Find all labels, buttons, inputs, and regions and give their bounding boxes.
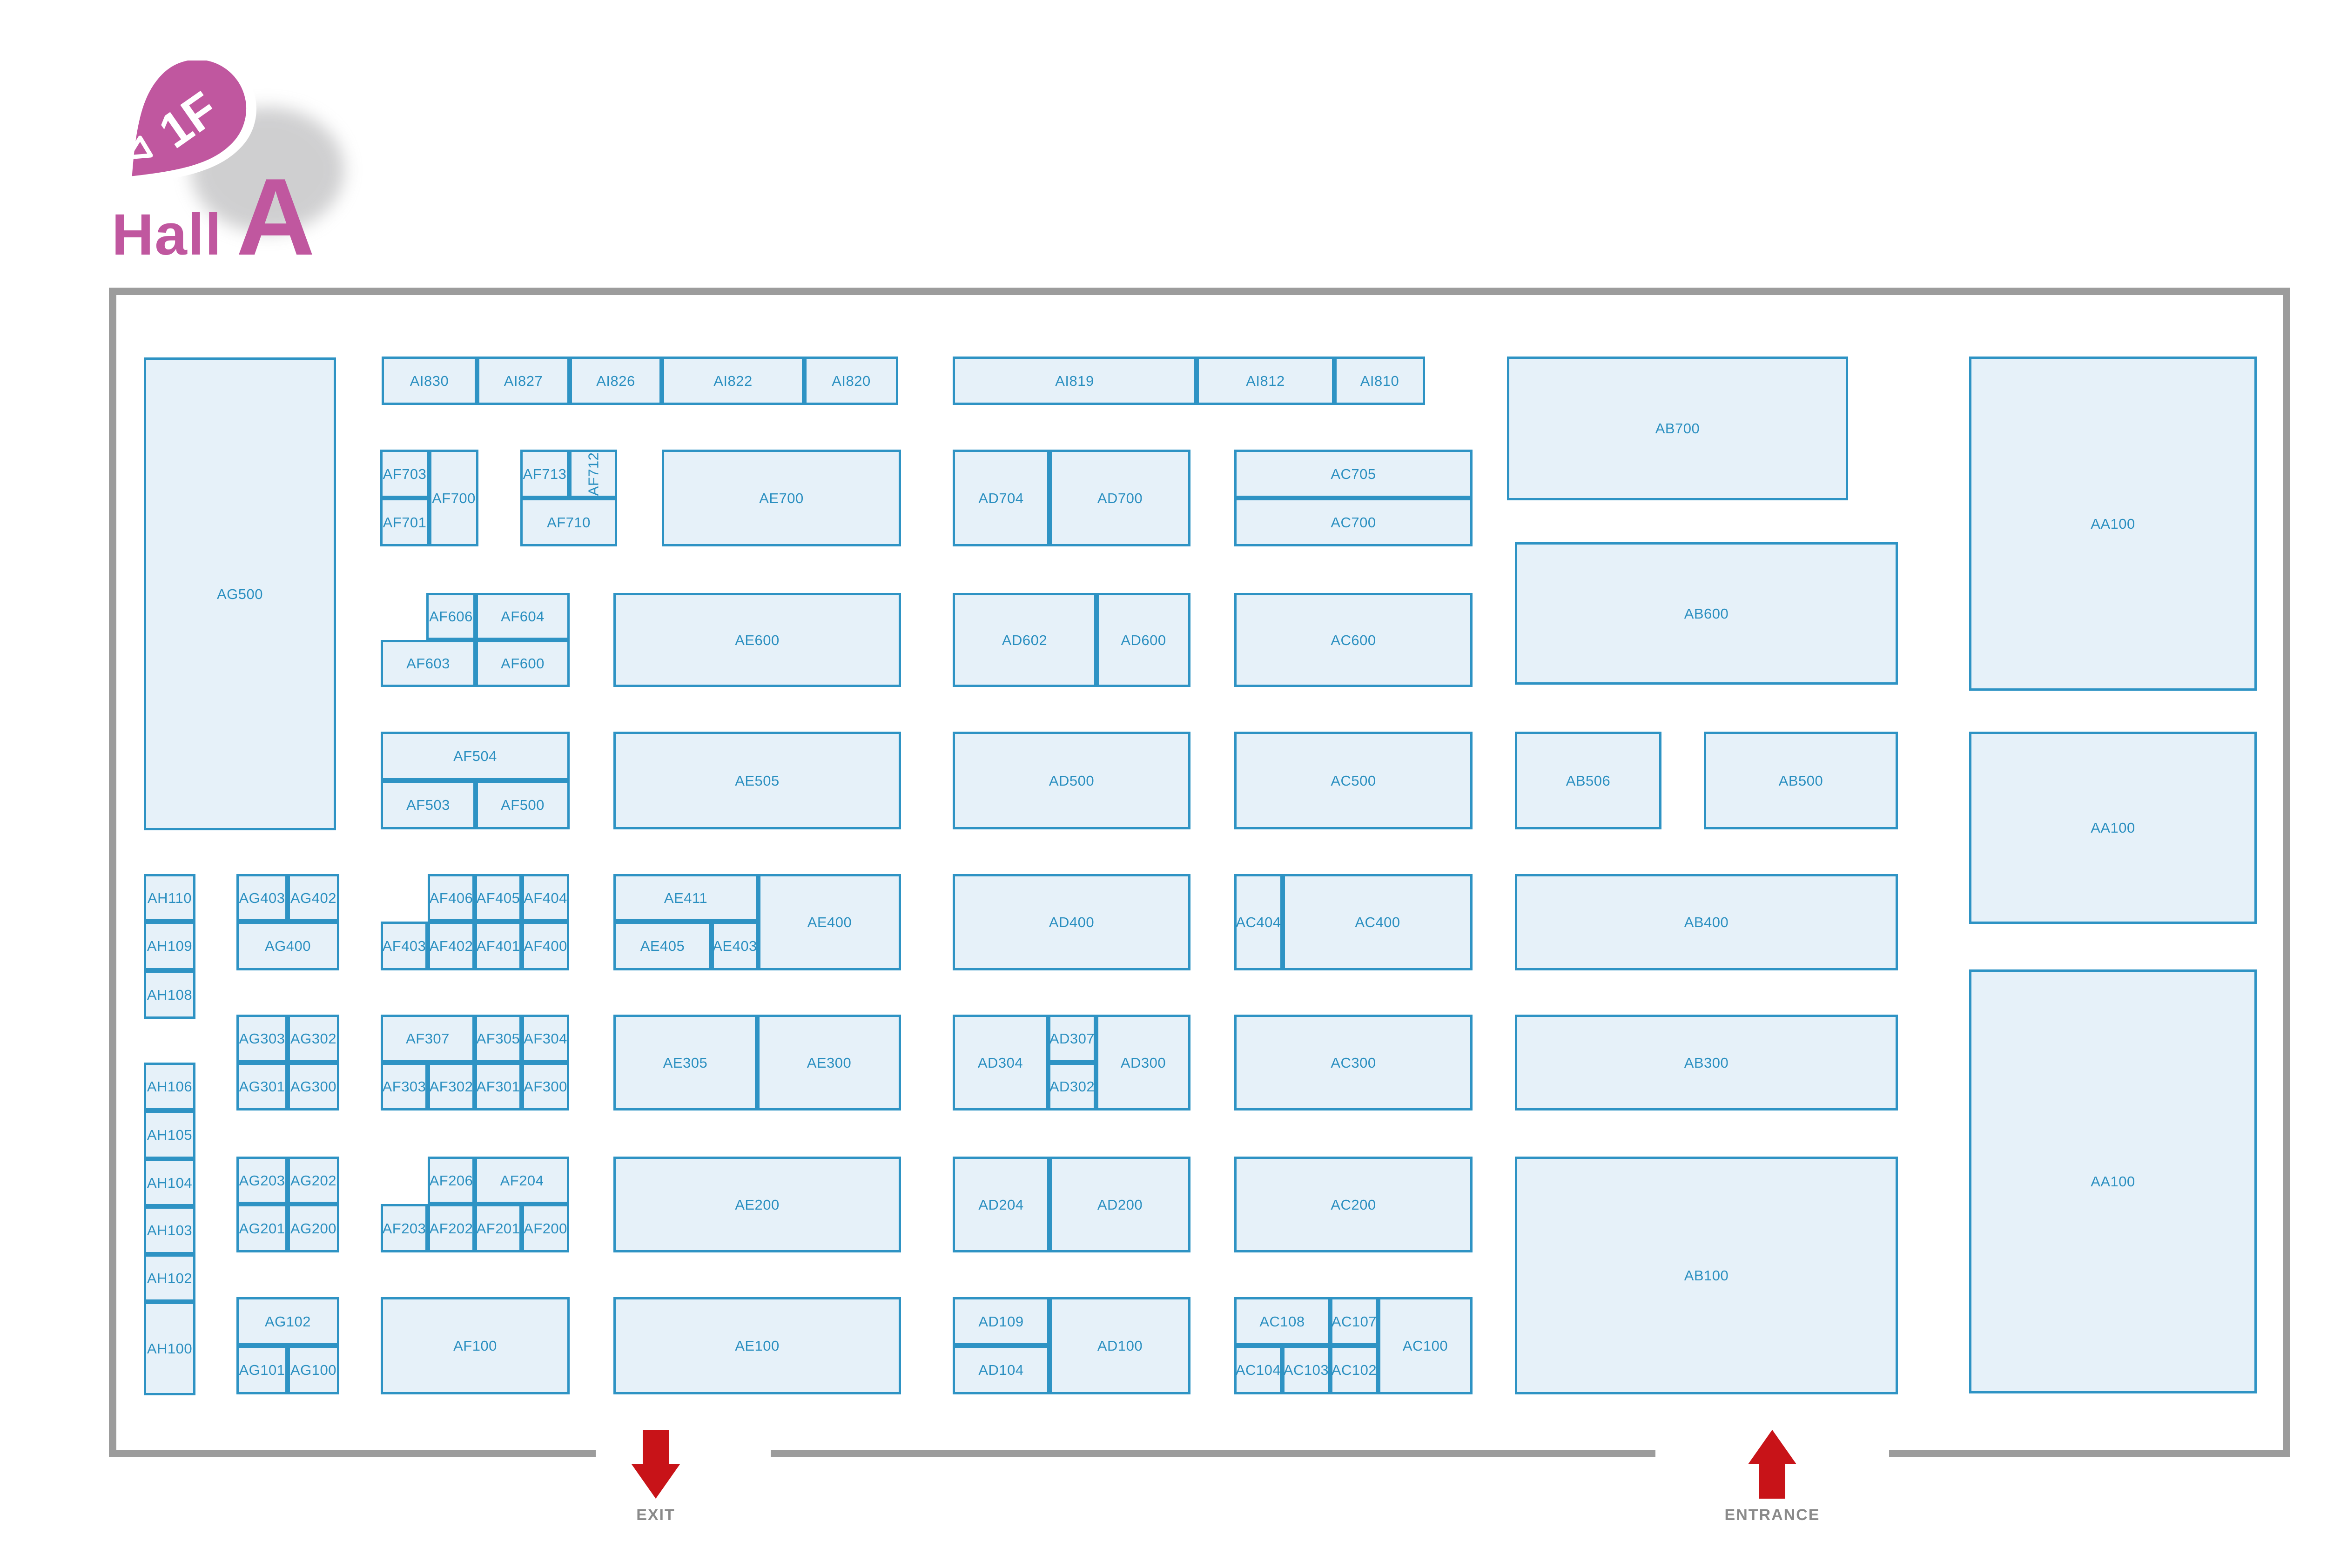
hall-wall-left bbox=[109, 288, 116, 1457]
booth-label: AH102 bbox=[147, 1271, 192, 1285]
booth-af100-105: AF100 bbox=[381, 1297, 570, 1394]
booth-label: AA100 bbox=[2091, 1174, 2135, 1189]
booth-label: AF403 bbox=[383, 939, 426, 953]
booth-label: AF700 bbox=[432, 491, 476, 505]
booth-label: AD602 bbox=[1002, 633, 1047, 647]
booth-ae505-34: AE505 bbox=[613, 732, 901, 829]
booth-ae305-75: AE305 bbox=[613, 1015, 757, 1110]
booth-aa100-61: AA100 bbox=[1969, 969, 2257, 1393]
booth-ae200-97: AE200 bbox=[613, 1157, 901, 1252]
booth-af305-69: AF305 bbox=[475, 1015, 522, 1063]
hall-floor-plan: 1F Hall A AG500AI830AI827AI826AI822AI820… bbox=[0, 0, 2327, 1568]
booth-label: AH100 bbox=[147, 1341, 192, 1356]
booth-label: AI810 bbox=[1360, 374, 1399, 388]
booth-label: AD302 bbox=[1049, 1079, 1095, 1094]
booth-label: AF301 bbox=[477, 1079, 520, 1094]
booth-ac200-100: AC200 bbox=[1234, 1157, 1473, 1252]
booth-ab700-9: AB700 bbox=[1507, 357, 1848, 500]
booth-label: AI822 bbox=[713, 374, 753, 388]
booth-ac700-21: AC700 bbox=[1234, 498, 1473, 546]
booth-ad109-107: AD109 bbox=[953, 1297, 1049, 1346]
booth-af200-96: AF200 bbox=[522, 1204, 569, 1252]
booth-ae405-54: AE405 bbox=[613, 922, 712, 970]
booth-ac600-30: AC600 bbox=[1234, 593, 1473, 687]
booth-ag100-104: AG100 bbox=[288, 1346, 339, 1394]
booth-label: AA100 bbox=[2091, 517, 2135, 531]
booth-label: AD100 bbox=[1097, 1339, 1143, 1353]
booth-label: AD200 bbox=[1097, 1198, 1143, 1212]
booth-label: AB700 bbox=[1655, 421, 1700, 436]
booth-af405-47: AF405 bbox=[475, 874, 522, 922]
hall-wall-bottom-right bbox=[1889, 1450, 2290, 1457]
booth-label: AF703 bbox=[383, 467, 427, 481]
booth-label: AD307 bbox=[1049, 1031, 1095, 1046]
booth-label: AF603 bbox=[406, 656, 450, 671]
entrance-arrow-icon bbox=[1740, 1430, 1805, 1499]
booth-label: AF503 bbox=[406, 798, 450, 812]
booth-label: AH104 bbox=[147, 1176, 192, 1190]
booth-af603-25: AF603 bbox=[381, 640, 476, 687]
booth-ad302-79: AD302 bbox=[1048, 1063, 1096, 1110]
booth-label: AI830 bbox=[410, 374, 449, 388]
booth-label: AF302 bbox=[430, 1079, 473, 1094]
booth-label: AG303 bbox=[239, 1031, 285, 1046]
booth-label: AE600 bbox=[735, 633, 780, 647]
booth-ah109-41: AH109 bbox=[144, 922, 195, 970]
booth-label: AC104 bbox=[1236, 1363, 1281, 1377]
booth-ab400-60: AB400 bbox=[1515, 874, 1898, 970]
booth-label: AF303 bbox=[383, 1079, 426, 1094]
booth-label: AC705 bbox=[1331, 467, 1376, 481]
booth-ad200-99: AD200 bbox=[1049, 1157, 1190, 1252]
booth-label: AC107 bbox=[1332, 1314, 1377, 1329]
booth-label: AF304 bbox=[524, 1031, 567, 1046]
booth-ac500-36: AC500 bbox=[1234, 732, 1473, 829]
booth-label: AF701 bbox=[383, 515, 427, 530]
booth-label: AG201 bbox=[239, 1221, 285, 1236]
booth-ad700-19: AD700 bbox=[1049, 450, 1190, 546]
booth-label: AG402 bbox=[290, 891, 336, 905]
booth-ae300-76: AE300 bbox=[757, 1015, 901, 1110]
booth-label: AB506 bbox=[1566, 774, 1611, 788]
booth-label: AE300 bbox=[807, 1056, 852, 1070]
booth-ac300-81: AC300 bbox=[1234, 1015, 1473, 1110]
booth-ag201-89: AG201 bbox=[236, 1204, 288, 1252]
booth-label: AC600 bbox=[1331, 633, 1376, 647]
booth-af204-92: AF204 bbox=[475, 1157, 569, 1204]
booth-ag400-45: AG400 bbox=[236, 922, 339, 970]
booth-ah110-40: AH110 bbox=[144, 874, 195, 922]
booth-ad704-18: AD704 bbox=[953, 450, 1049, 546]
booth-af304-70: AF304 bbox=[522, 1015, 569, 1063]
exit-marker: EXIT bbox=[586, 1430, 726, 1524]
booth-af600-26: AF600 bbox=[476, 640, 570, 687]
booth-ad602-28: AD602 bbox=[953, 593, 1096, 687]
booth-ac404-58: AC404 bbox=[1234, 874, 1283, 970]
booth-ai820-5: AI820 bbox=[804, 357, 898, 405]
booth-label: AE200 bbox=[735, 1198, 780, 1212]
booth-label: AC100 bbox=[1403, 1339, 1448, 1353]
booth-label: AD304 bbox=[978, 1056, 1023, 1070]
booth-label: AI820 bbox=[832, 374, 871, 388]
booth-label: AF404 bbox=[524, 891, 567, 905]
hall-word: Hall bbox=[112, 202, 222, 268]
booth-label: AE411 bbox=[664, 891, 707, 905]
booth-label: AF400 bbox=[524, 939, 567, 953]
booth-label: AE305 bbox=[663, 1056, 708, 1070]
booth-ac100-115: AC100 bbox=[1378, 1297, 1473, 1394]
booth-label: AC500 bbox=[1331, 774, 1376, 788]
exit-arrow-icon bbox=[623, 1430, 688, 1499]
booth-ad600-29: AD600 bbox=[1096, 593, 1190, 687]
booth-ai819-6: AI819 bbox=[953, 357, 1197, 405]
booth-label: AG200 bbox=[290, 1221, 336, 1236]
booth-label: AE400 bbox=[807, 915, 852, 929]
booth-label: AC102 bbox=[1332, 1363, 1377, 1377]
booth-ae403-55: AE403 bbox=[712, 922, 758, 970]
booth-af404-48: AF404 bbox=[522, 874, 569, 922]
booth-ag300-67: AG300 bbox=[288, 1063, 339, 1110]
booth-label: AI827 bbox=[504, 374, 543, 388]
booth-label: AF406 bbox=[430, 891, 473, 905]
booth-ai812-7: AI812 bbox=[1197, 357, 1334, 405]
booth-af713-14: AF713 bbox=[520, 450, 569, 498]
booth-label: AE700 bbox=[759, 491, 804, 505]
booth-label: AF713 bbox=[523, 467, 567, 481]
booth-ab100-101: AB100 bbox=[1515, 1157, 1898, 1394]
booth-ad204-98: AD204 bbox=[953, 1157, 1049, 1252]
booth-af606-23: AF606 bbox=[426, 593, 476, 640]
booth-ae411-53: AE411 bbox=[613, 874, 758, 922]
booth-label: AB300 bbox=[1684, 1056, 1729, 1070]
booth-ai826-3: AI826 bbox=[570, 357, 662, 405]
booth-ad104-108: AD104 bbox=[953, 1346, 1049, 1394]
booth-ad300-80: AD300 bbox=[1096, 1015, 1190, 1110]
booth-ae600-27: AE600 bbox=[613, 593, 901, 687]
booth-ag402-44: AG402 bbox=[288, 874, 339, 922]
booth-af206-91: AF206 bbox=[428, 1157, 475, 1204]
booth-ad500-35: AD500 bbox=[953, 732, 1190, 829]
booth-af401-51: AF401 bbox=[475, 922, 522, 970]
hall-wall-bottom-left bbox=[109, 1450, 596, 1457]
booth-ah102-85: AH102 bbox=[144, 1254, 195, 1302]
booth-ac102-114: AC102 bbox=[1330, 1346, 1378, 1394]
booth-ag203-87: AG203 bbox=[236, 1157, 288, 1204]
booth-label: AG203 bbox=[239, 1173, 285, 1188]
booth-label: AF204 bbox=[500, 1173, 544, 1188]
booth-label: AG300 bbox=[290, 1079, 336, 1094]
booth-ac400-59: AC400 bbox=[1283, 874, 1473, 970]
booth-ah100-86: AH100 bbox=[144, 1302, 195, 1395]
booth-af701-12: AF701 bbox=[380, 498, 429, 546]
booth-label: AF200 bbox=[524, 1221, 567, 1236]
booth-af403-49: AF403 bbox=[381, 922, 428, 970]
booth-label: AF604 bbox=[501, 609, 545, 624]
booth-af406-46: AF406 bbox=[428, 874, 475, 922]
booth-label: AE100 bbox=[735, 1339, 780, 1353]
booth-ag102-102: AG102 bbox=[236, 1297, 339, 1346]
booth-ag403-43: AG403 bbox=[236, 874, 288, 922]
booth-af402-50: AF402 bbox=[428, 922, 475, 970]
booth-af703-11: AF703 bbox=[380, 450, 429, 498]
booth-ad307-78: AD307 bbox=[1048, 1015, 1096, 1063]
booth-label: AG100 bbox=[290, 1363, 336, 1377]
booth-ag302-65: AG302 bbox=[288, 1015, 339, 1063]
booth-label: AC103 bbox=[1284, 1363, 1329, 1377]
booth-af700-13: AF700 bbox=[429, 450, 478, 546]
booth-label: AF307 bbox=[406, 1031, 450, 1046]
booth-ad100-109: AD100 bbox=[1049, 1297, 1190, 1394]
booth-ad304-77: AD304 bbox=[953, 1015, 1048, 1110]
booth-ac108-110: AC108 bbox=[1234, 1297, 1330, 1346]
booth-ae400-56: AE400 bbox=[758, 874, 901, 970]
booth-af400-52: AF400 bbox=[522, 922, 569, 970]
booth-af201-95: AF201 bbox=[475, 1204, 522, 1252]
booth-label: AE405 bbox=[640, 939, 685, 953]
booth-label: AF500 bbox=[501, 798, 545, 812]
booth-label: AI812 bbox=[1246, 374, 1285, 388]
booth-label: AH110 bbox=[148, 891, 192, 905]
booth-label: AF712 bbox=[586, 452, 600, 496]
booth-ag101-103: AG101 bbox=[236, 1346, 288, 1394]
hall-letter: A bbox=[236, 154, 315, 280]
booth-af504-31: AF504 bbox=[381, 732, 570, 781]
booth-label: AF405 bbox=[477, 891, 520, 905]
booth-af302-72: AF302 bbox=[428, 1063, 475, 1110]
hall-title: Hall A bbox=[112, 154, 315, 280]
booth-label: AF305 bbox=[477, 1031, 520, 1046]
booth-label: AG102 bbox=[265, 1314, 311, 1329]
booth-af203-93: AF203 bbox=[381, 1204, 428, 1252]
booth-af712-15: AF712 bbox=[569, 450, 617, 498]
booth-label: AE403 bbox=[713, 939, 757, 953]
booth-label: AD204 bbox=[978, 1198, 1023, 1212]
booth-label: AC404 bbox=[1236, 915, 1281, 929]
booth-label: AG202 bbox=[290, 1173, 336, 1188]
booth-label: AD700 bbox=[1097, 491, 1143, 505]
booth-label: AF100 bbox=[453, 1339, 497, 1353]
booth-label: AF206 bbox=[430, 1173, 473, 1188]
hall-wall-top bbox=[109, 288, 2290, 295]
booth-label: AG301 bbox=[239, 1079, 285, 1094]
booth-label: AG400 bbox=[265, 939, 311, 953]
booth-label: AA100 bbox=[2091, 821, 2135, 835]
booth-ab600-22: AB600 bbox=[1515, 542, 1898, 685]
hall-wall-right bbox=[2283, 288, 2290, 1457]
booth-label: AD704 bbox=[978, 491, 1023, 505]
booth-label: AI819 bbox=[1055, 374, 1094, 388]
booth-af303-71: AF303 bbox=[381, 1063, 428, 1110]
booth-label: AF600 bbox=[501, 656, 545, 671]
booth-af503-32: AF503 bbox=[381, 781, 476, 829]
booth-label: AF402 bbox=[430, 939, 473, 953]
booth-ai822-4: AI822 bbox=[662, 357, 804, 405]
booth-label: AD400 bbox=[1049, 915, 1094, 929]
booth-aa100-10: AA100 bbox=[1969, 357, 2257, 691]
booth-label: AB400 bbox=[1684, 915, 1729, 929]
booth-ag200-90: AG200 bbox=[288, 1204, 339, 1252]
booth-ab300-82: AB300 bbox=[1515, 1015, 1898, 1110]
booth-af500-33: AF500 bbox=[476, 781, 570, 829]
booth-label: AG403 bbox=[239, 891, 285, 905]
booth-aa100-39: AA100 bbox=[1969, 732, 2257, 924]
booth-label: AG500 bbox=[217, 587, 263, 601]
booth-ah108-42: AH108 bbox=[144, 970, 195, 1019]
booth-label: AF201 bbox=[477, 1221, 520, 1236]
booth-af710-16: AF710 bbox=[520, 498, 617, 546]
booth-label: AB500 bbox=[1779, 774, 1823, 788]
booth-ac107-111: AC107 bbox=[1330, 1297, 1378, 1346]
booth-label: AC200 bbox=[1331, 1198, 1376, 1212]
booth-ai830-1: AI830 bbox=[382, 357, 477, 405]
booth-label: AB600 bbox=[1684, 606, 1729, 621]
booth-ab506-37: AB506 bbox=[1515, 732, 1661, 829]
entrance-label: ENTRANCE bbox=[1702, 1506, 1842, 1524]
booth-ah106-62: AH106 bbox=[144, 1063, 195, 1110]
booth-ah103-84: AH103 bbox=[144, 1206, 195, 1254]
booth-af301-73: AF301 bbox=[475, 1063, 522, 1110]
booth-af300-74: AF300 bbox=[522, 1063, 569, 1110]
exit-label: EXIT bbox=[586, 1506, 726, 1524]
booth-label: AH109 bbox=[147, 939, 192, 953]
booth-ae100-106: AE100 bbox=[613, 1297, 901, 1394]
booth-ac103-113: AC103 bbox=[1282, 1346, 1330, 1394]
booth-af202-94: AF202 bbox=[428, 1204, 475, 1252]
booth-label: AF300 bbox=[524, 1079, 567, 1094]
booth-ab500-38: AB500 bbox=[1704, 732, 1898, 829]
booth-ag500-0: AG500 bbox=[144, 357, 336, 830]
booth-ah104-83: AH104 bbox=[144, 1159, 195, 1206]
booth-ag301-66: AG301 bbox=[236, 1063, 288, 1110]
booth-label: AF401 bbox=[477, 939, 520, 953]
booth-ac104-112: AC104 bbox=[1234, 1346, 1282, 1394]
booth-label: AC700 bbox=[1331, 515, 1376, 530]
booth-label: AH105 bbox=[147, 1128, 192, 1142]
booth-ad400-57: AD400 bbox=[953, 874, 1190, 970]
booth-label: AC400 bbox=[1355, 915, 1400, 929]
booth-label: AG302 bbox=[290, 1031, 336, 1046]
booth-label: AC108 bbox=[1259, 1314, 1305, 1329]
booth-label: AH103 bbox=[147, 1223, 192, 1238]
hall-wall-bottom-mid bbox=[771, 1450, 1655, 1457]
booth-label: AH108 bbox=[147, 988, 192, 1002]
booth-ai827-2: AI827 bbox=[477, 357, 570, 405]
booth-af604-24: AF604 bbox=[476, 593, 570, 640]
booth-label: AD109 bbox=[978, 1314, 1023, 1329]
booth-label: AF202 bbox=[430, 1221, 473, 1236]
booth-label: AF710 bbox=[547, 515, 591, 530]
booth-label: AD500 bbox=[1049, 774, 1094, 788]
booth-af307-68: AF307 bbox=[381, 1015, 475, 1063]
booth-label: AF203 bbox=[383, 1221, 426, 1236]
booth-label: AD104 bbox=[978, 1363, 1023, 1377]
booth-ag303-64: AG303 bbox=[236, 1015, 288, 1063]
booth-label: AG101 bbox=[239, 1363, 285, 1377]
booth-label: AF504 bbox=[453, 749, 497, 763]
booth-label: AE505 bbox=[735, 774, 780, 788]
booth-ai810-8: AI810 bbox=[1334, 357, 1425, 405]
booth-label: AD600 bbox=[1121, 633, 1166, 647]
booth-ah105-63: AH105 bbox=[144, 1110, 195, 1159]
booth-label: AB100 bbox=[1684, 1268, 1729, 1283]
booth-label: AC300 bbox=[1331, 1056, 1376, 1070]
booth-label: AH106 bbox=[147, 1079, 192, 1094]
booth-ag202-88: AG202 bbox=[288, 1157, 339, 1204]
booth-label: AI826 bbox=[596, 374, 635, 388]
booth-label: AD300 bbox=[1121, 1056, 1166, 1070]
booth-ac705-20: AC705 bbox=[1234, 450, 1473, 498]
entrance-marker: ENTRANCE bbox=[1702, 1430, 1842, 1524]
booth-ae700-17: AE700 bbox=[662, 450, 901, 546]
booth-label: AF606 bbox=[429, 609, 473, 624]
